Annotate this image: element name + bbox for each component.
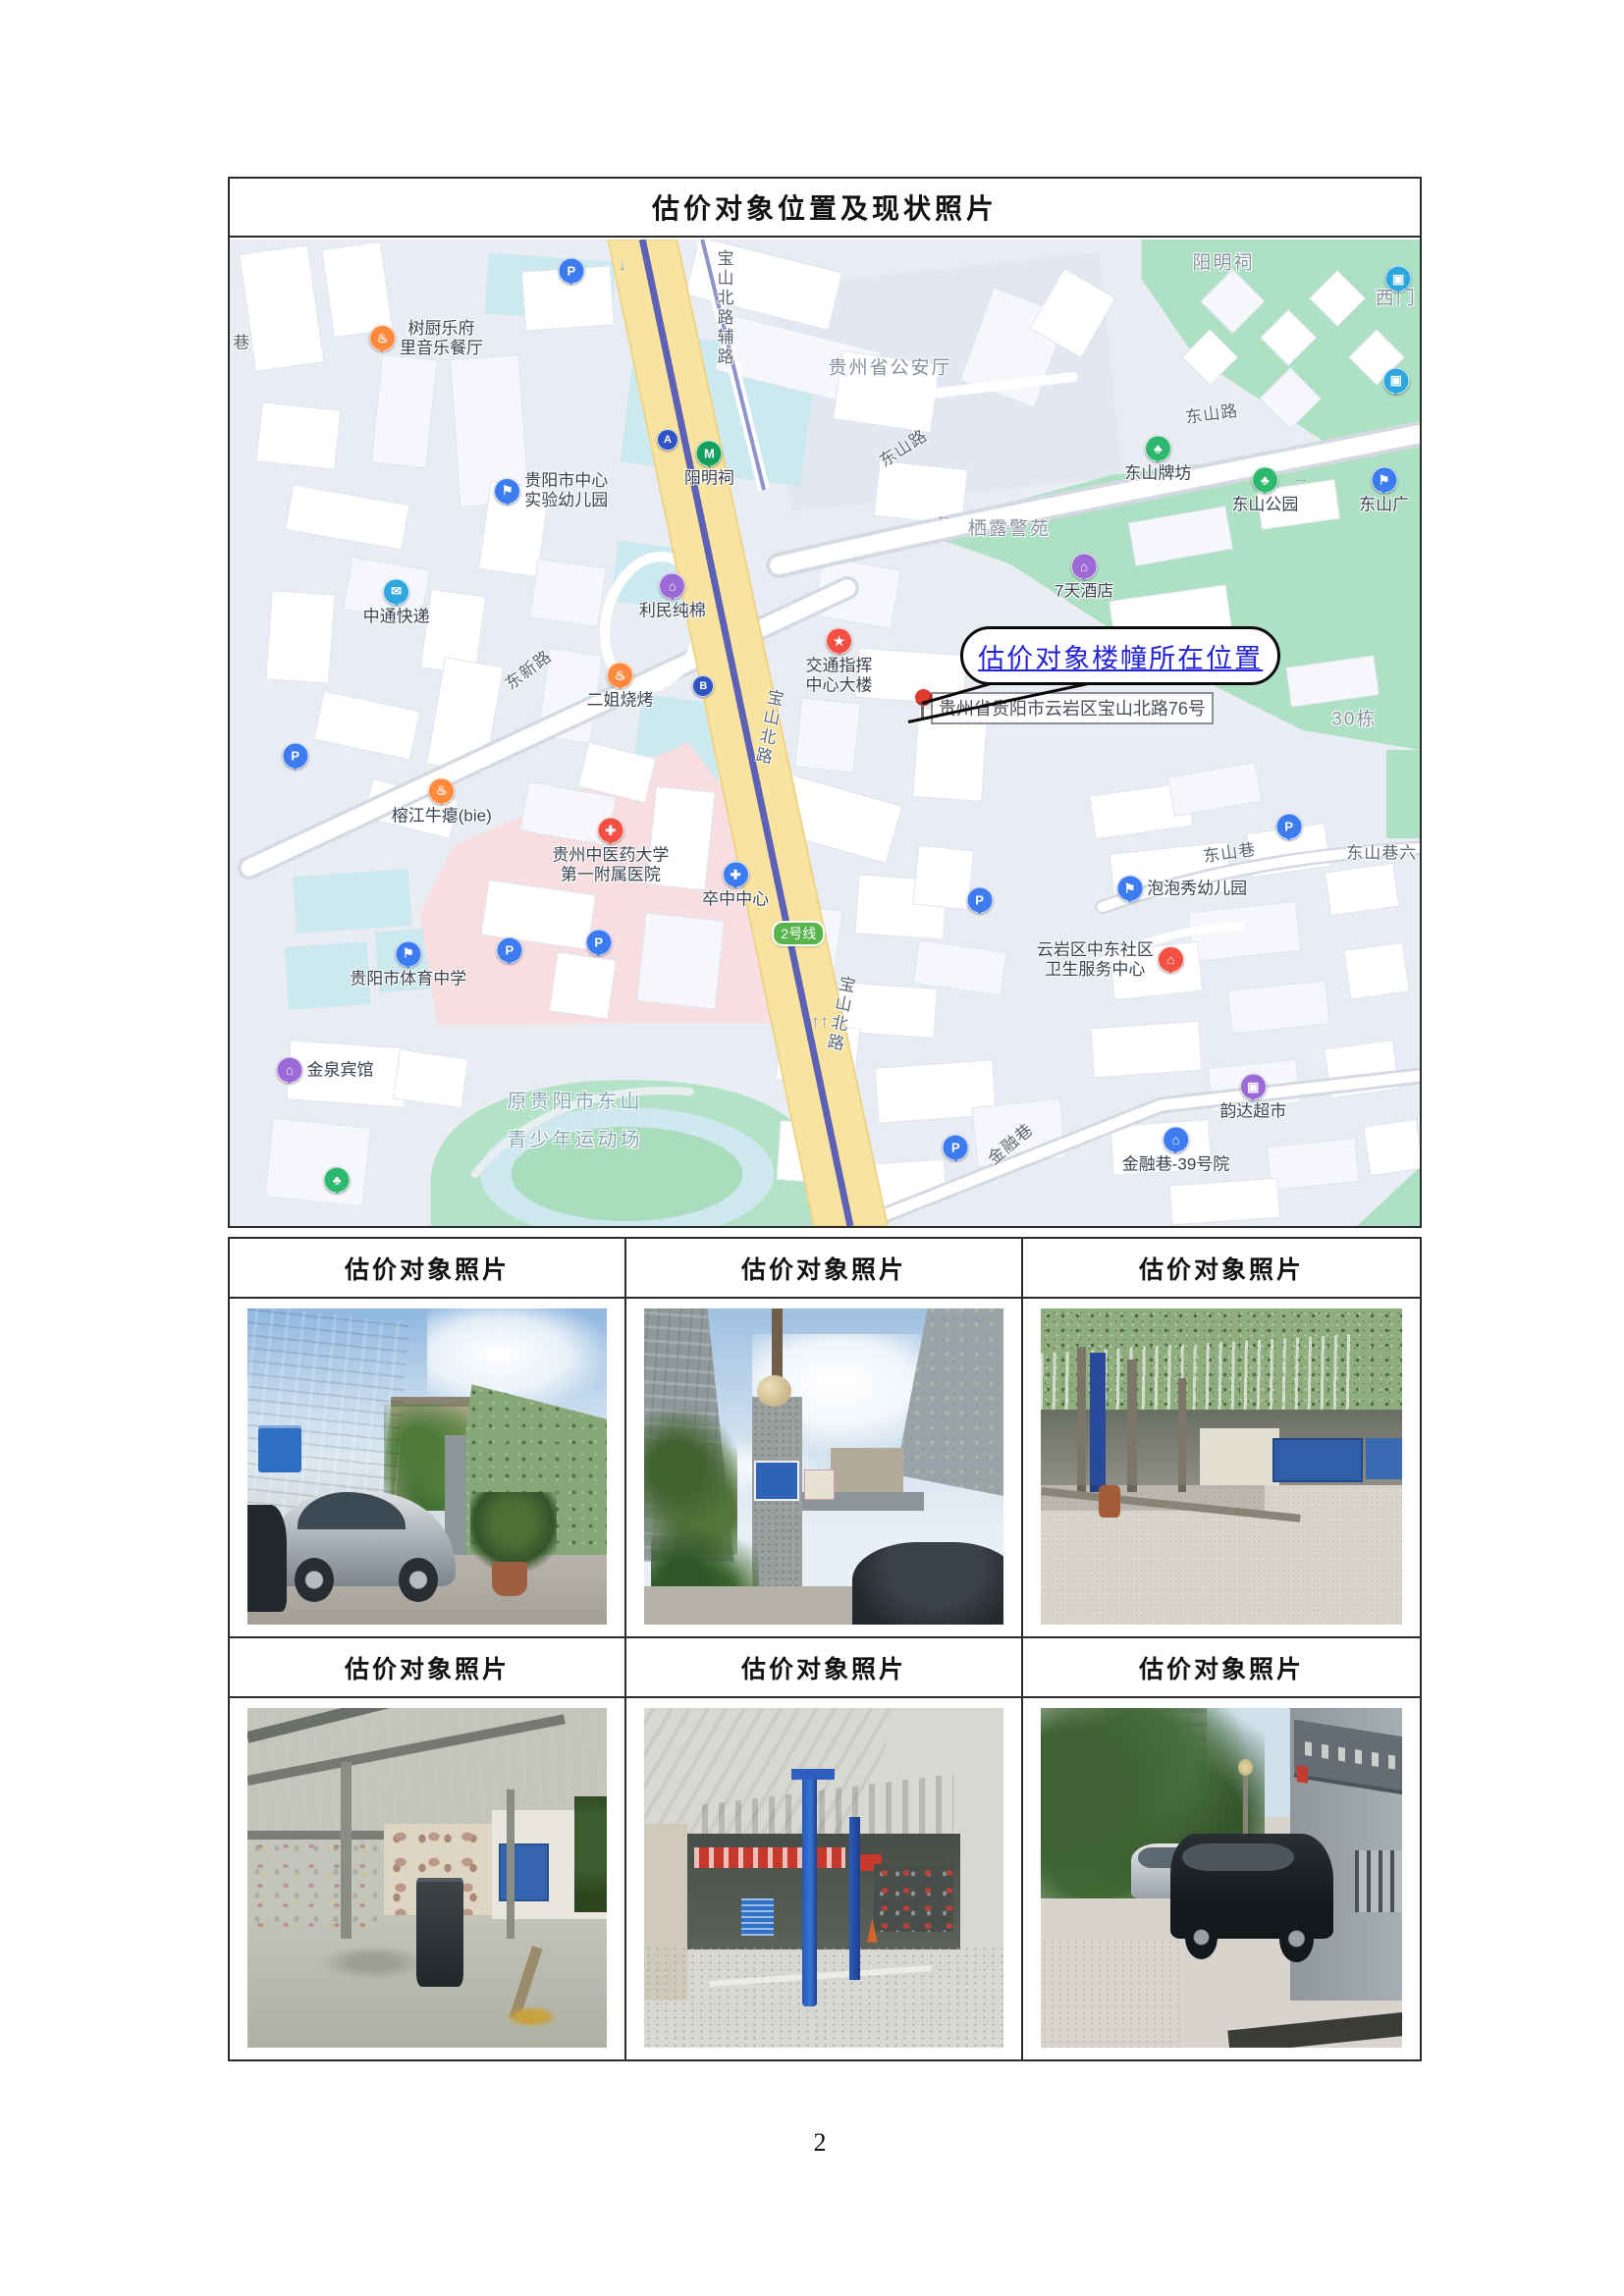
map-poi: ✚贵州中医药大学第一附属医院 [552,818,669,885]
hotel-pin-icon: ⌂ [659,572,685,599]
map-road-label: 宝山北路 [748,687,787,769]
table-title-row: 估价对象位置及现状照片 [230,179,1420,238]
parking-icon: P [1275,813,1302,839]
map-road-label: 东新路 [499,643,556,694]
map-area-label: 30栋 [1331,705,1377,731]
hospital-pin-icon: ✚ [597,818,623,844]
map-area-label: 阳明祠 [1193,248,1255,275]
map-poi: 云岩区中东社区卫生服务中心⌂ [1037,940,1184,980]
photo-caption: 估价对象照片 [345,1650,510,1685]
bus-pin-icon: ▣ [1382,367,1409,394]
metro-pin-icon: M [696,441,723,467]
photo-cell [626,1698,1023,2059]
map-area-label: 栖露警苑 [968,514,1051,541]
parking-pin-icon: P [966,887,993,914]
photo-caption-cell: 估价对象照片 [230,1239,626,1299]
parking-pin-icon: P [282,742,308,769]
photo-carport [1041,1308,1402,1625]
photo-cell [1023,1299,1420,1638]
map-road-label: 东山巷六 [1346,839,1417,864]
photo-caption: 估价对象照片 [1139,1251,1304,1286]
map-poi: ▣韵达超市 [1219,1074,1286,1122]
parking-pin-icon: P [558,258,584,285]
parking-pin-icon: P [585,929,612,955]
food-pin-icon: ♨ [607,663,633,689]
flag-pin-icon: ⚑ [395,940,421,967]
map-road-label: 东山路 [873,422,931,471]
map-poi: M阳明祠 [684,441,734,489]
metro-line-badge: 2号线 [772,921,825,946]
tree-icon: ♣ [324,1166,351,1193]
parking-pin-icon: P [1275,813,1302,839]
food-pin-icon: ♨ [428,777,455,804]
photo-cell [1023,1698,1420,2059]
location-table: 估价对象位置及现状照片 [228,177,1422,1228]
parking-icon: P [558,258,584,285]
map-poi: ♣东山牌坊 [1124,436,1191,484]
map-area-label: 青少年运动场 [507,1123,642,1151]
map-poi: ⚑东山广 [1359,467,1409,515]
page-number: 2 [0,2128,1624,2158]
photo-caption-cell: 估价对象照片 [1023,1638,1420,1698]
map-poi: 贵阳市中心实验幼儿园⚑ [494,471,608,510]
photo-gate-pillar [644,1308,1003,1625]
map-poi: ⚑贵阳市体育中学 [350,940,466,988]
map-poi: ⌂金融巷-39号院 [1122,1126,1230,1174]
photo-caption-cell: 估价对象照片 [626,1638,1023,1698]
express-pin-icon: ✉ [383,578,409,605]
photo-workshop-interior [247,1708,607,2048]
parking-pin-icon: P [943,1134,969,1160]
map-poi: ♨榕江牛瘪(bie) [392,777,492,826]
road-direction-arrow-icon: ← [935,506,952,526]
map-road-label: 宝山北路辅路 [711,249,735,367]
photo-cell [626,1299,1023,1638]
parking-icon: P [496,936,522,963]
blueflag-pin-icon: ⚑ [1371,467,1397,494]
exitA-icon: A [657,429,678,451]
photo-caption-cell: 估价对象照片 [230,1638,626,1698]
star-pin-icon: ★ [826,628,852,655]
map-poi: 树厨乐府里音乐餐厅♨ [369,318,483,357]
map-poi: ♣东山公园 [1231,467,1298,515]
redhome-pin-icon: ⌂ [1158,946,1184,973]
park-pin-icon: ♣ [1145,436,1171,462]
callout-bubble: 估价对象楼幢所在位置 [960,626,1280,685]
map-area-label: 原贵阳市东山 [507,1086,642,1114]
map-area-label: 贵州省公安厅 [829,352,952,379]
photo-caption: 估价对象照片 [345,1251,510,1286]
map-poi: ⌂7天酒店 [1055,553,1113,601]
photo-caption: 估价对象照片 [741,1251,906,1286]
map-poi: ♨二姐烧烤 [587,663,654,711]
photo-caption: 估价对象照片 [741,1650,906,1685]
map-poi: 金泉宾馆⌂ [276,1057,373,1084]
parking-icon: P [943,1134,969,1160]
parking-icon: P [585,929,612,955]
parking-pin-icon: P [496,936,522,963]
exitA-pin-icon: A [657,429,678,451]
map-road-label: 金融巷 [981,1116,1037,1169]
map-road-label: 东山巷 [1202,835,1258,867]
road-direction-arrow-icon: ↓ [618,255,626,276]
food-pin-icon: ♨ [369,325,396,351]
map-poi: 泡泡秀幼儿园⚑ [1116,876,1247,902]
hotel-pin-icon: ⌂ [1071,553,1098,579]
photo-shop-front-lift [644,1708,1003,2048]
report-page: 估价对象位置及现状照片 [0,0,1624,2296]
photo-caption: 估价对象照片 [1139,1650,1304,1685]
exitB-icon: B [692,675,714,697]
map-poi: ✉中通快递 [363,578,430,626]
flag-pin-icon: ⚑ [494,478,520,505]
photo-street-entrance [247,1308,607,1625]
photo-caption-cell: 估价对象照片 [1023,1239,1420,1299]
bus-icon: ▣ [1382,367,1409,394]
exitB-pin-icon: B [692,675,714,697]
road-direction-arrow-icon: ↑↑ [811,1011,829,1032]
bluehome-pin-icon: ⌂ [1163,1126,1189,1152]
bus-pin-icon: ▣ [1385,266,1412,293]
map-poi: ★交通指挥中心大楼 [806,628,873,696]
callout-text: 估价对象楼幢所在位置 [978,637,1263,675]
map-image: 宝山北路辅路东山路东山路东新路宝山北路宝山北路金融巷东山巷东山巷六巷30栋阳明祠… [230,240,1420,1226]
clinic-pin-icon: ✚ [723,862,749,888]
map-road-label: 东山路 [1183,397,1239,428]
hotel-pin-icon: ⌂ [276,1057,302,1084]
page-title: 估价对象位置及现状照片 [652,187,998,227]
photo-table: 估价对象照片 估价对象照片 估价对象照片 [228,1237,1422,2061]
park-pin-icon: ♣ [1252,467,1278,494]
map-road-label: 巷 [233,328,250,352]
bus-icon: ▣ [1385,266,1412,293]
flag-pin-icon: ⚑ [1116,876,1143,902]
tree-pin-icon: ♣ [324,1166,351,1193]
photo-caption-cell: 估价对象照片 [626,1239,1023,1299]
map-label-layer: 宝山北路辅路东山路东山路东新路宝山北路宝山北路金融巷东山巷东山巷六巷30栋阳明祠… [230,240,1420,1226]
map-poi: ✚卒中中心 [702,862,769,910]
parking-icon: P [282,742,308,769]
photo-suv-courtyard [1041,1708,1402,2048]
photo-cell [230,1698,626,2059]
market-pin-icon: ▣ [1240,1074,1267,1100]
map-poi: ⌂利民纯棉 [639,572,706,620]
photo-cell [230,1299,626,1638]
parking-icon: P [966,887,993,914]
